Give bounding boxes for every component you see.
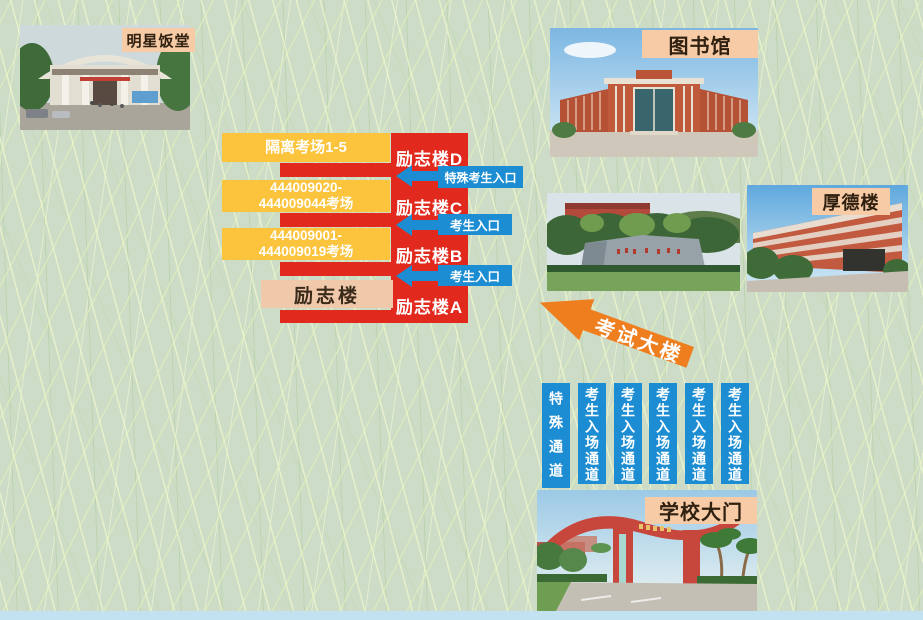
bottom-strip — [0, 611, 923, 620]
channel-bar: 考生入场通道 — [578, 383, 606, 484]
campus-guide-diagram: 明星饭堂 — [0, 0, 923, 620]
room-range-block-1: 444009001- 444009019考场 — [222, 228, 390, 260]
isolation-rooms-block: 隔离考场1-5 — [222, 133, 390, 162]
canteen-label: 明星饭堂 — [122, 28, 195, 52]
tower-floor-label-a: 励志楼A — [391, 293, 468, 318]
channel-bar: 考生入场通道 — [721, 383, 749, 484]
floor-connector-bar — [280, 262, 392, 276]
monument-photo — [547, 193, 740, 291]
room-range-2-line2: 444009044考场 — [259, 196, 354, 212]
lizhi-building-block: 励志楼 — [261, 280, 393, 308]
entrance-label-b: 考生入口 — [438, 214, 512, 235]
houde-label: 厚德楼 — [812, 188, 890, 215]
tower-floor-label-b: 励志楼B — [391, 242, 468, 267]
entrance-label-a: 考生入口 — [438, 265, 512, 286]
channel-bar: 考生入场通道 — [649, 383, 677, 484]
channel-bar: 考生入场通道 — [614, 383, 642, 484]
room-range-2-line1: 444009020- — [270, 180, 342, 196]
entrance-arrow-icon — [396, 265, 438, 292]
room-range-1-line1: 444009001- — [270, 228, 342, 244]
room-range-block-2: 444009020- 444009044考场 — [222, 180, 390, 212]
floor-connector-bar — [280, 163, 392, 177]
library-label: 图书馆 — [642, 30, 758, 58]
floor-connector-bar — [280, 213, 392, 227]
entrance-arrow-icon — [396, 165, 438, 192]
channel-bar: 考生入场通道 — [685, 383, 713, 484]
isolation-rooms-text: 隔离考场1-5 — [265, 140, 347, 156]
entrance-arrow-icon — [396, 214, 438, 241]
channel-bar-special: 特殊通道 — [542, 383, 570, 488]
entrance-label-special: 特殊考生入口 — [438, 166, 523, 188]
gate-label: 学校大门 — [645, 497, 757, 524]
exam-building-arrow-label: 考试大楼 — [582, 299, 696, 380]
exam-building-arrow: 考试大楼 — [530, 279, 701, 380]
room-range-1-line2: 444009019考场 — [259, 244, 354, 260]
